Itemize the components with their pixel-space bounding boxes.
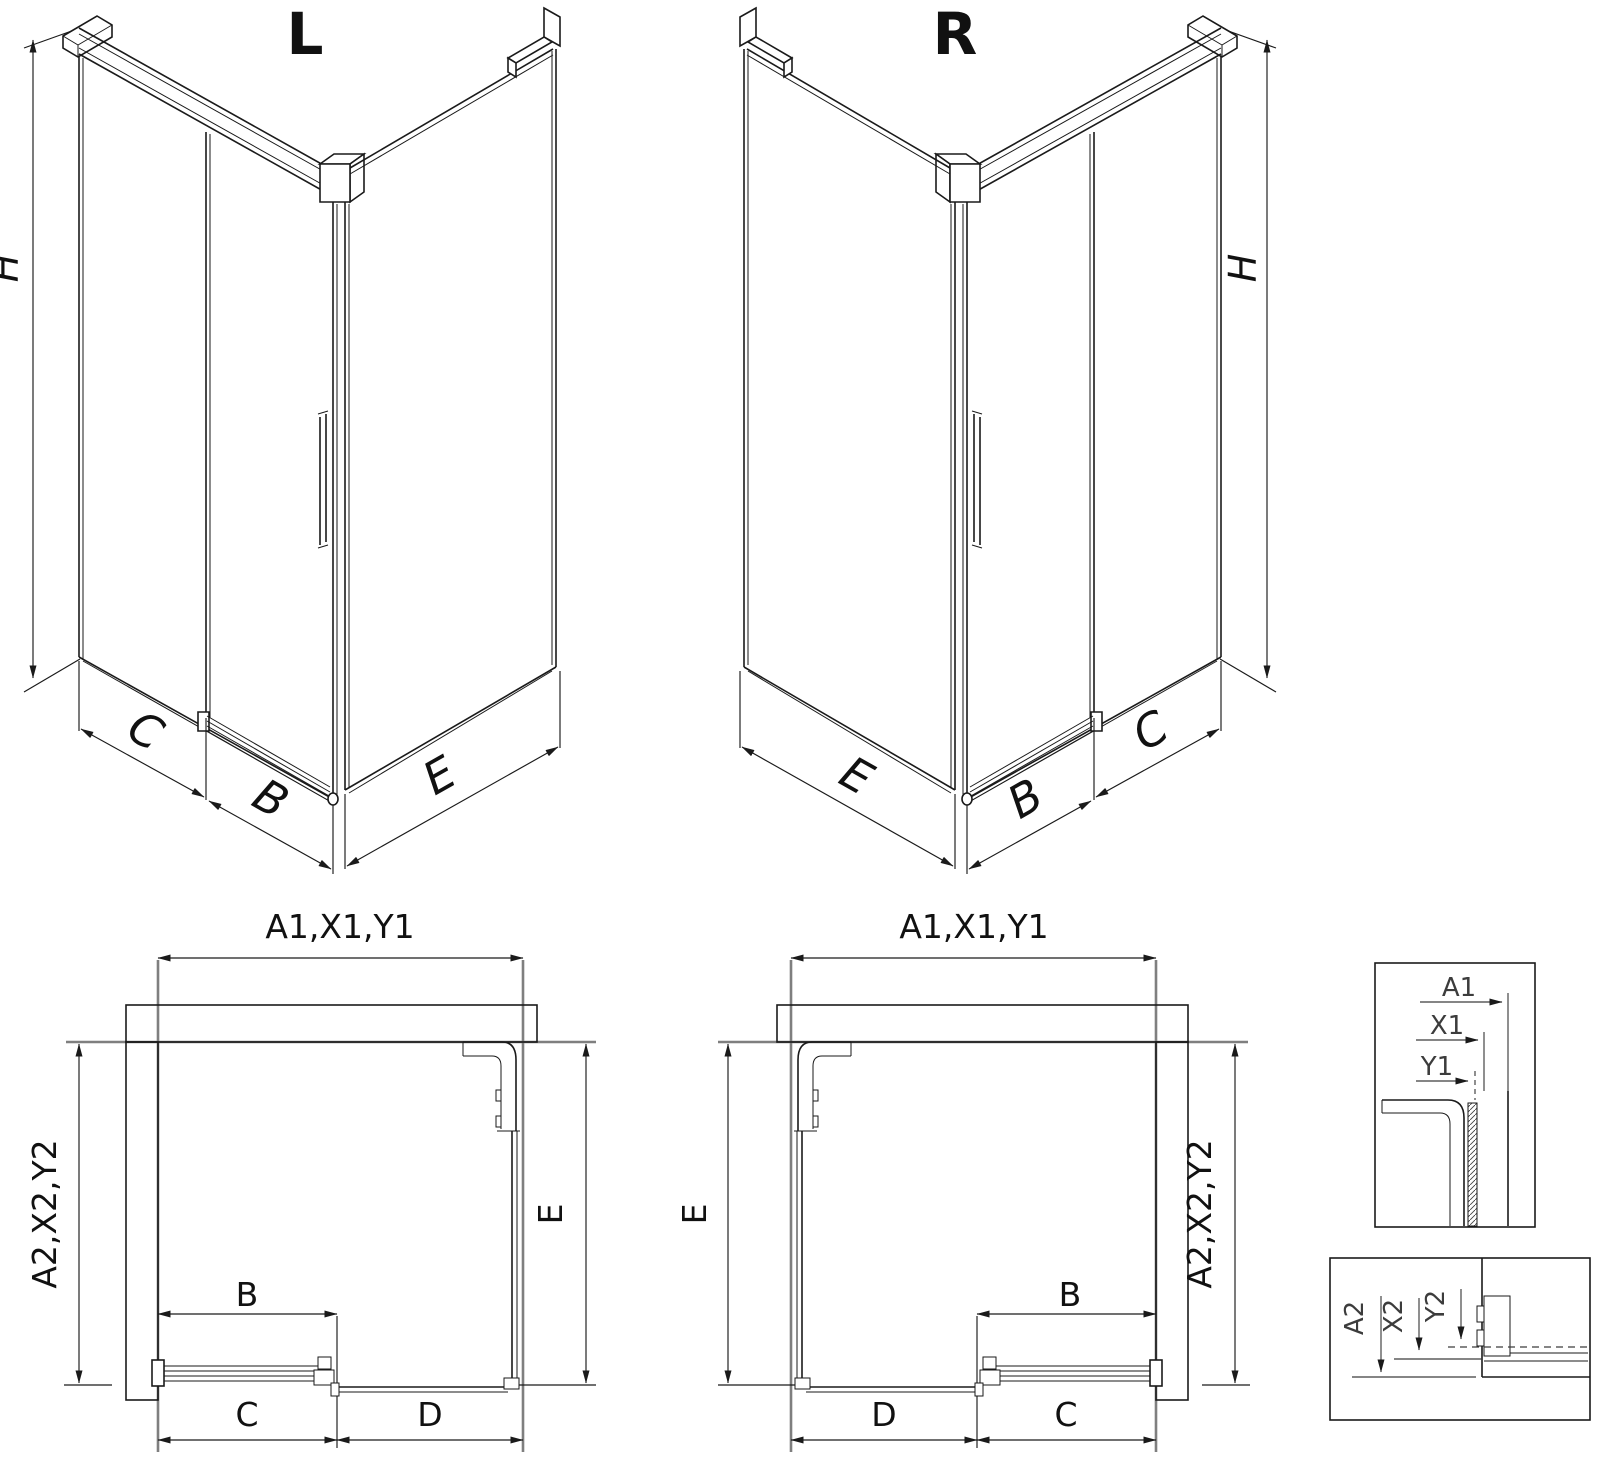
dim-label-e-right: E <box>831 745 882 805</box>
plan-right-dim-depth: A2,X2,Y2 <box>1180 1139 1219 1288</box>
plan-view-left: A1,X1,Y1 A2,X2,Y2 E B C D <box>25 907 596 1452</box>
plan-left-dim-e: E <box>531 1204 570 1225</box>
iso-left-geometry <box>24 8 560 874</box>
view-title-right: R <box>933 0 978 68</box>
plan-left-dim-d: D <box>417 1395 442 1434</box>
dim-label-e-left: E <box>414 745 465 805</box>
detail-dim-x1: X1 <box>1430 1011 1464 1041</box>
plan-right-dim-d: D <box>871 1395 896 1434</box>
dim-label-b-left: B <box>244 768 297 829</box>
plan-right-dim-e: E <box>675 1204 714 1225</box>
detail-dim-a1: A1 <box>1442 973 1476 1003</box>
view-title-left: L <box>287 0 324 68</box>
plan-right-dim-top: A1,X1,Y1 <box>899 907 1048 946</box>
shower-enclosure-diagram: L H C B E R H C B E A1,X1,Y1 A2,X2,Y2 E … <box>0 0 1600 1458</box>
detail-dim-y1: Y1 <box>1420 1052 1453 1082</box>
detail-dim-y2: Y2 <box>1421 1290 1451 1323</box>
plan-left-geometry <box>64 958 596 1452</box>
iso-view-right: R H C B E <box>740 0 1276 874</box>
plan-left-dim-b: B <box>236 1275 259 1314</box>
dim-label-c-right: C <box>1124 699 1178 761</box>
plan-left-dim-depth: A2,X2,Y2 <box>25 1139 64 1288</box>
iso-right-geometry <box>740 8 1276 874</box>
detail-dim-a2: A2 <box>1340 1301 1370 1335</box>
dim-label-h-right: H <box>1221 254 1265 283</box>
detail-dim-x2: X2 <box>1379 1299 1409 1333</box>
plan-left-dim-c: C <box>235 1395 258 1434</box>
dim-label-h-left: H <box>0 254 27 283</box>
plan-right-dim-b: B <box>1059 1275 1082 1314</box>
detail-box-width: A1 X1 Y1 <box>1375 963 1535 1227</box>
detail-box-depth: A2 X2 Y2 <box>1330 1258 1590 1420</box>
plan-right-geometry <box>718 958 1250 1452</box>
plan-view-right: A1,X1,Y1 A2,X2,Y2 E B C D <box>675 907 1250 1452</box>
plan-right-dim-c: C <box>1054 1395 1077 1434</box>
technical-drawing-page: L H C B E R H C B E A1,X1,Y1 A2,X2,Y2 E … <box>0 0 1600 1458</box>
iso-view-left: L H C B E <box>0 0 560 874</box>
dim-label-c-left: C <box>119 700 173 762</box>
plan-left-dim-top: A1,X1,Y1 <box>265 907 414 946</box>
